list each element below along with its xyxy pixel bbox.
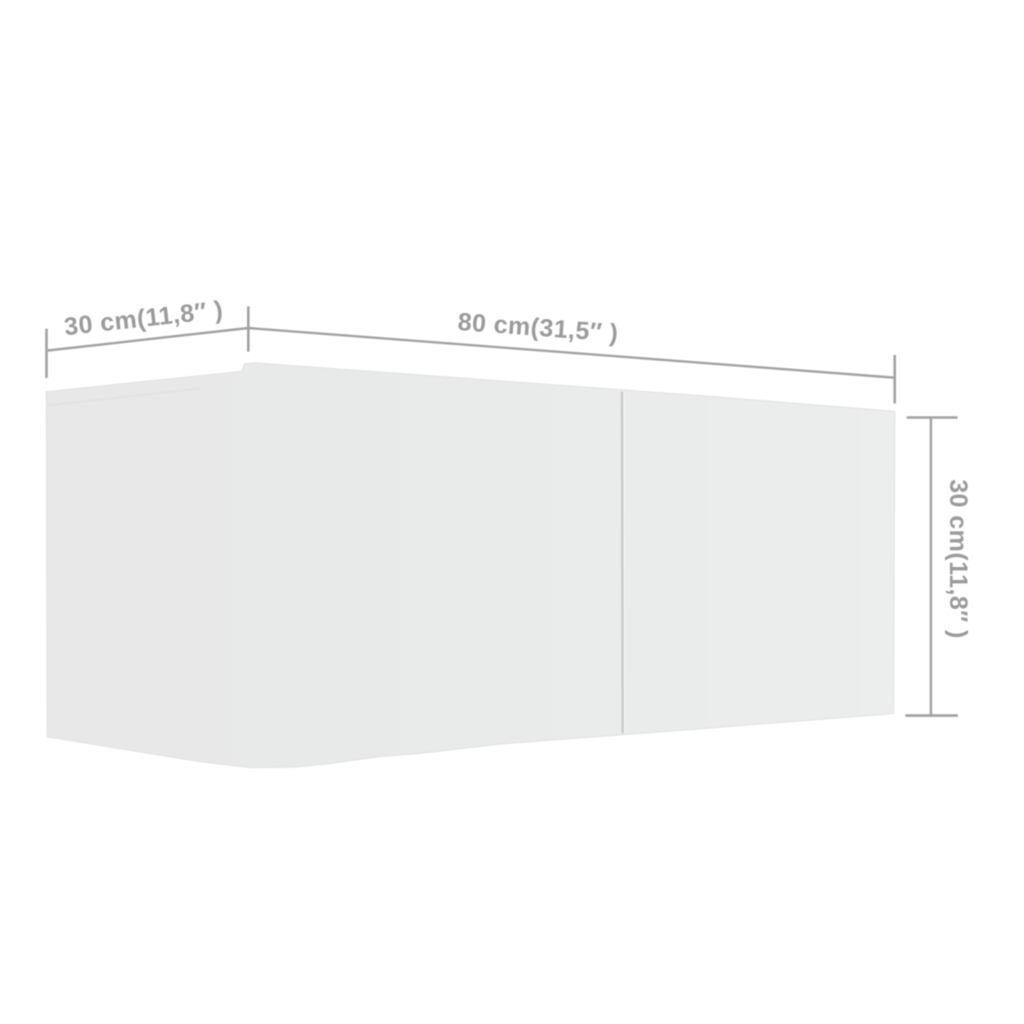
svg-text:80 cm(31,5″ ): 80 cm(31,5″ ) xyxy=(457,308,620,348)
svg-text:30 cm(11,8″ ): 30 cm(11,8″ ) xyxy=(944,479,972,639)
